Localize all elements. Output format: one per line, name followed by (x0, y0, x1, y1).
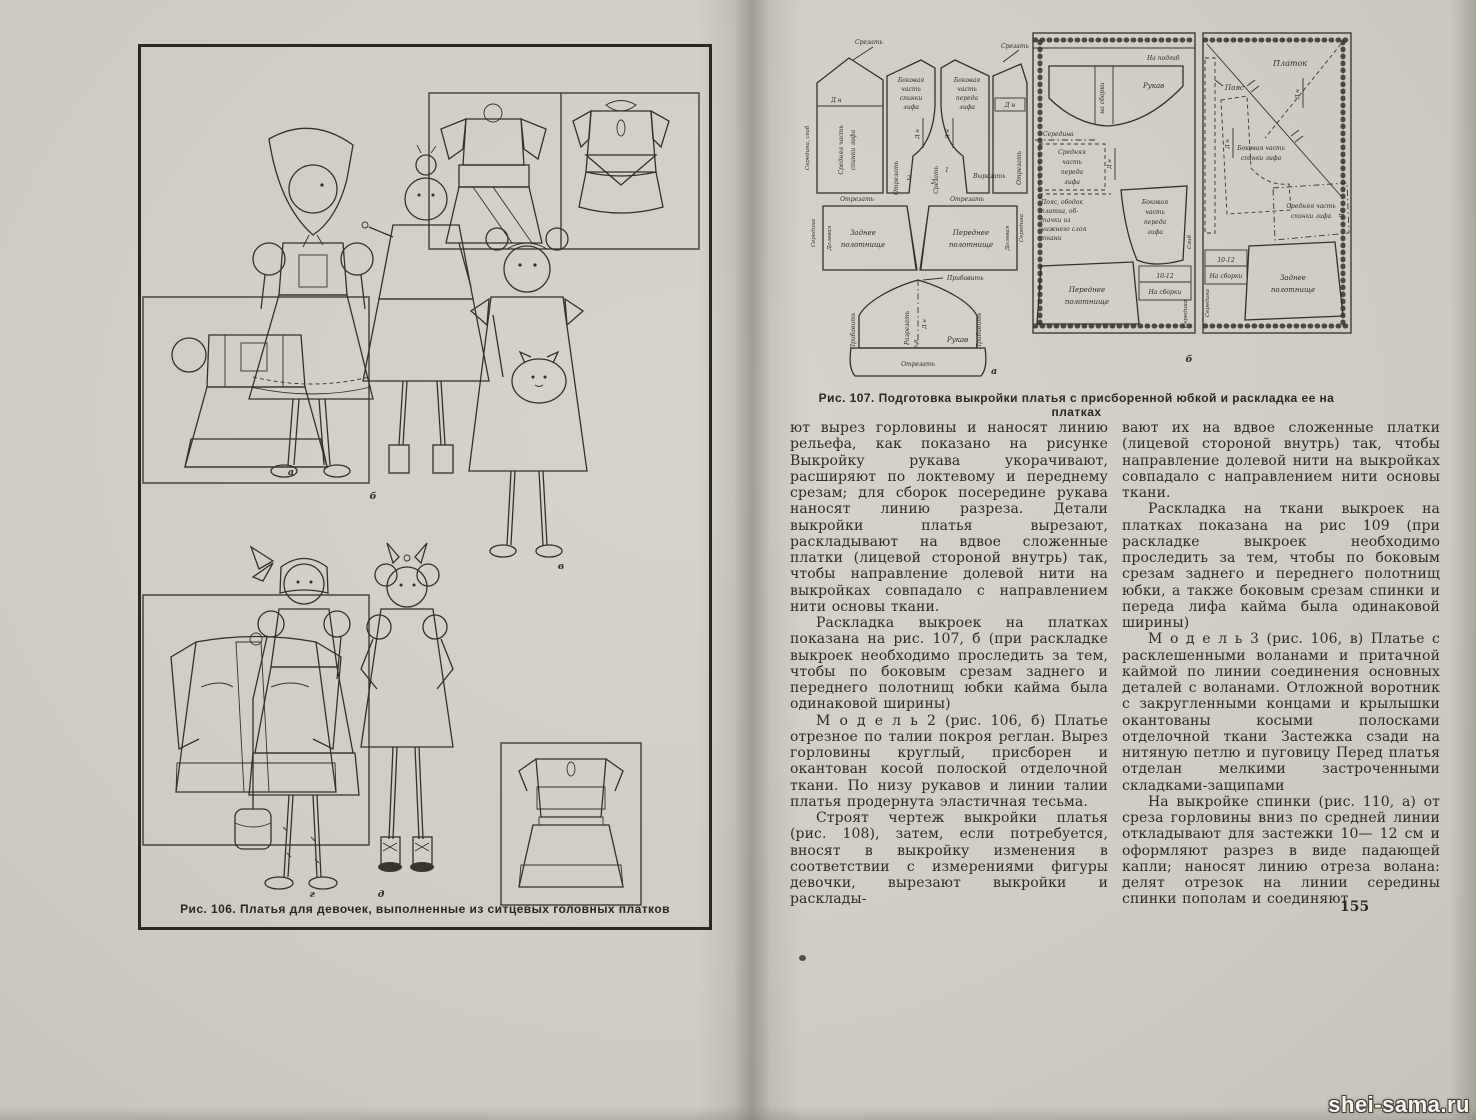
text-column-left: ют вырез горловины и наносят линию релье… (790, 420, 1108, 908)
figure-106-illustration: а (141, 47, 709, 927)
paragraph: На выкройке спинки (рис. 110, а) от срез… (1122, 794, 1440, 908)
girl-headscarf (249, 128, 373, 477)
svg-text:Заднее: Заднее (850, 229, 876, 237)
svg-text:Середина: Середина (1043, 131, 1074, 138)
svg-text:Прибавить: Прибавить (976, 313, 983, 351)
paragraph: Раскладка выкроек на платках показана на… (790, 615, 1108, 713)
inset-coat (143, 595, 369, 845)
svg-text:переда: переда (1061, 169, 1084, 176)
svg-text:нижнего слоя: нижнего слоя (1041, 226, 1086, 233)
svg-text:часть: часть (1062, 159, 1082, 166)
svg-text:На подгиб: На подгиб (1146, 55, 1180, 62)
svg-text:Середина: Середина (1183, 300, 1189, 328)
svg-text:Боковая: Боковая (953, 77, 980, 84)
ink-smudge (799, 955, 806, 961)
svg-text:Отрезать: Отрезать (1016, 151, 1023, 185)
svg-text:переда: переда (956, 95, 979, 102)
page-gutter-shadow (698, 0, 802, 1120)
svg-text:Середина: Середина (1019, 214, 1025, 242)
svg-text:Прибавить: Прибавить (850, 313, 857, 351)
svg-text:Долевая: Долевая (827, 225, 833, 251)
svg-text:Д н: Д н (915, 129, 921, 140)
svg-text:Переднее: Переднее (1068, 286, 1105, 294)
paragraph: вают их на вдвое сложенные платки (лицев… (1122, 420, 1440, 501)
svg-text:Средняя часть: Средняя часть (838, 125, 845, 174)
svg-text:На сборки: На сборки (1209, 273, 1243, 280)
svg-text:10-12: 10-12 (1217, 257, 1234, 264)
girl-pinafore-cat: в (469, 228, 587, 572)
inset-dress-d (501, 743, 641, 905)
svg-text:Средняя: Средняя (1058, 149, 1086, 156)
svg-text:Боковая часть: Боковая часть (1236, 145, 1285, 152)
svg-text:Д н: Д н (922, 319, 928, 330)
part-b-letter: б (1186, 354, 1193, 365)
text-column-right: вают их на вдвое сложенные платки (лицев… (1122, 420, 1440, 908)
svg-text:полотнище: полотнище (1065, 298, 1109, 306)
svg-text:Отрезать: Отрезать (840, 196, 874, 203)
svg-text:лифа: лифа (1147, 229, 1163, 236)
label-b: б (370, 491, 377, 502)
svg-text:спинки лифа: спинки лифа (1291, 213, 1332, 220)
label-g: г (309, 889, 315, 900)
svg-text:Прибавить: Прибавить (946, 275, 984, 282)
kerchief-2: Платок Пояс Боковая часть спинки лифа Д … (1203, 33, 1351, 333)
svg-text:Боковая: Боковая (897, 77, 924, 84)
inset-panel-dresses (429, 93, 699, 249)
svg-text:Средняя часть: Средняя часть (1286, 203, 1335, 210)
scan-edge-shadow (1450, 0, 1476, 1120)
svg-text:часть: часть (1145, 209, 1165, 216)
svg-text:Рукав: Рукав (946, 336, 968, 344)
scan-edge-shadow-bottom (0, 1106, 1476, 1120)
figure-107-diagram: Середина, сгиб Д н Средняя часть спинки … (795, 28, 1360, 384)
svg-text:Боковая: Боковая (1141, 199, 1168, 206)
svg-text:2: 2 (930, 179, 935, 186)
svg-text:лифа: лифа (1064, 179, 1080, 186)
svg-text:Д н: Д н (1339, 208, 1345, 219)
svg-text:Середина: Середина (811, 219, 817, 247)
svg-text:Д н: Д н (830, 97, 842, 104)
paragraph: Раскладка на ткани выкроек на платках по… (1122, 501, 1440, 631)
svg-text:Вырезать: Вырезать (972, 173, 1006, 180)
svg-text:Сгиб: Сгиб (1186, 234, 1193, 249)
svg-text:Середина, сгиб: Середина, сгиб (804, 125, 811, 170)
part-a-letter: а (991, 366, 997, 377)
girl-topknot: б (362, 145, 489, 502)
paragraph: ют вырез горловины и наносят линию релье… (790, 420, 1108, 615)
svg-text:Пояс: Пояс (1224, 84, 1244, 92)
label-v: в (558, 561, 564, 572)
svg-text:полотнище: полотнище (1271, 286, 1315, 294)
svg-text:спинки лифа: спинки лифа (1241, 155, 1282, 162)
svg-text:Рукав: Рукав (1142, 82, 1164, 90)
inset-dress-a: а (143, 297, 369, 483)
page-number: 155 (1340, 899, 1369, 915)
kerchief-1: На подгиб на сборки Рукав Середина Средн… (1033, 33, 1195, 333)
diagram-part-a: Середина, сгиб Д н Средняя часть спинки … (804, 39, 1029, 377)
paragraph: М о д е л ь 3 (рис. 106, в) Платье с рас… (1122, 631, 1440, 794)
figure-106-frame: а (138, 44, 712, 930)
label-d: д (378, 889, 385, 900)
svg-text:Платок: Платок (1272, 59, 1307, 68)
svg-text:лифа: лифа (959, 104, 975, 111)
svg-text:1: 1 (945, 167, 949, 174)
svg-text:Заднее: Заднее (1280, 274, 1306, 282)
paragraph: Строят чертеж выкройки платья (рис. 108)… (790, 810, 1108, 908)
site-watermark: shei-sama.ru (1328, 1092, 1470, 1118)
paragraph: М о д е л ь 2 (рис. 106, б) Платье отрез… (790, 713, 1108, 811)
svg-text:лифа: лифа (903, 104, 919, 111)
svg-text:переда: переда (1144, 219, 1167, 226)
svg-text:Д н: Д н (945, 129, 951, 140)
svg-text:Срезать: Срезать (855, 39, 883, 46)
svg-text:на сборки: на сборки (1099, 82, 1106, 113)
svg-text:спинки: спинки (900, 95, 923, 102)
svg-text:тачки из: тачки из (1041, 217, 1071, 224)
svg-text:платка, об-: платка, об- (1041, 208, 1078, 215)
girl-bob-bag: г (235, 547, 359, 900)
svg-text:Отрезать: Отрезать (901, 361, 935, 368)
svg-text:Д н: Д н (1295, 89, 1301, 100)
svg-text:10-12: 10-12 (1156, 273, 1173, 280)
svg-text:часть: часть (901, 86, 921, 93)
svg-text:На сборки: На сборки (1148, 289, 1182, 296)
svg-text:Долевая: Долевая (1005, 225, 1011, 251)
figure-107-caption: Рис. 107. Подготовка выкройки платья с п… (793, 391, 1360, 419)
svg-text:часть: часть (957, 86, 977, 93)
svg-text:Д н: Д н (1225, 139, 1231, 150)
svg-text:полотнище: полотнище (841, 241, 885, 249)
svg-text:Д н: Д н (1107, 159, 1113, 170)
svg-text:6-8: 6-8 (914, 339, 920, 348)
svg-text:Отрезать: Отрезать (950, 196, 984, 203)
svg-text:Середина: Середина (1205, 289, 1211, 317)
svg-text:Д н: Д н (1004, 102, 1016, 109)
svg-text:Пояс, ободок: Пояс, ободок (1040, 199, 1083, 206)
svg-text:полотнище: полотнище (949, 241, 993, 249)
svg-text:Отрезать: Отрезать (893, 161, 900, 195)
svg-text:2: 2 (906, 175, 911, 182)
girl-plaid: д (361, 543, 453, 900)
svg-text:спинки лифа: спинки лифа (850, 129, 857, 170)
svg-text:Переднее: Переднее (952, 229, 989, 237)
svg-text:Разрезать: Разрезать (904, 311, 911, 346)
book-scan: а (0, 0, 1476, 1120)
svg-text:ткани: ткани (1041, 235, 1062, 242)
diagram-part-b: На подгиб на сборки Рукав Середина Средн… (1033, 33, 1351, 365)
figure-106-caption: Рис. 106. Платья для девочек, выполненны… (141, 902, 709, 916)
svg-text:Срезать: Срезать (1001, 43, 1029, 50)
text-columns: ют вырез горловины и наносят линию релье… (790, 420, 1440, 908)
